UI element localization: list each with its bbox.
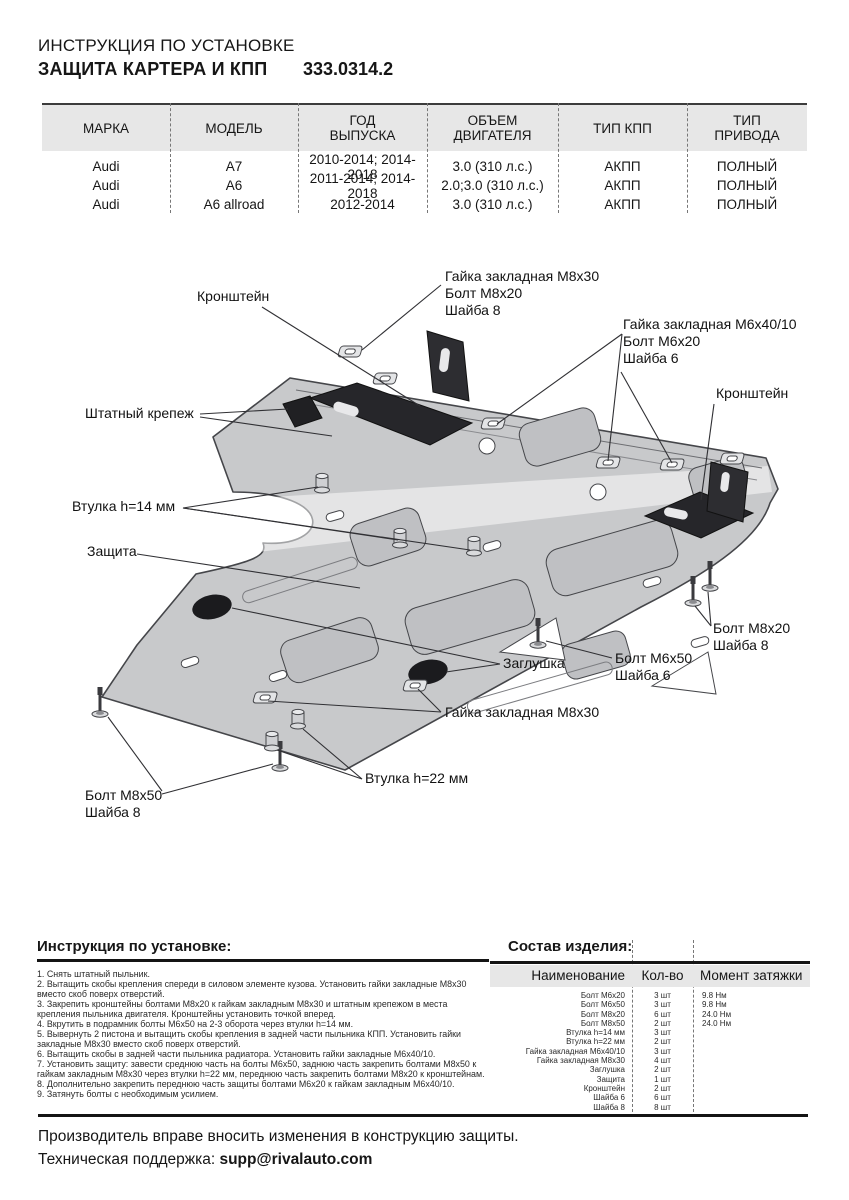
parts-row: Болт М6х503 шт9.8 Нм [490,1000,810,1009]
label-bushing-22: Втулка h=22 мм [365,770,468,787]
cell: A6 [170,178,298,193]
parts-rows: Болт М6х203 шт9.8 Нм Болт М6х503 шт9.8 Н… [490,991,810,1112]
parts-row: Втулка h=14 мм3 шт [490,1028,810,1037]
part-name: Болт М6х50 [490,1000,625,1009]
instruction-step: 6. Вытащить скобы в задней части пыльник… [37,1049,489,1059]
installation-instructions: Инструкция по установке: 1. Снять штатны… [37,938,489,1099]
part-name: Кронштейн [490,1084,625,1093]
part-torque: 9.8 Нм [702,991,807,1000]
label-guard: Защита [87,543,137,560]
part-qty: 3 шт [632,1028,693,1037]
part-name: Втулка h=22 мм [490,1037,625,1046]
part-qty: 2 шт [632,1019,693,1028]
header: ИНСТРУКЦИЯ ПО УСТАНОВКЕ ЗАЩИТА КАРТЕРА И… [38,36,638,81]
table-row: Audi A6 2011-2014; 2014-2018 2.0;3.0 (31… [42,176,807,195]
disclaimer: Производитель вправе вносить изменения в… [38,1128,519,1146]
cell: ПОЛНЫЙ [687,178,807,193]
label-nut-bolt-top: Гайка закладная М8х30 Болт М8х20 Шайба 8 [445,268,599,319]
part-qty: 6 шт [632,1093,693,1102]
part-qty: 3 шт [632,1047,693,1056]
label-factory-fastener: Штатный крепеж [85,405,194,422]
parts-row: Заглушка2 шт [490,1065,810,1074]
col-header-qty: Кол-во [632,968,693,983]
instruction-step: 8. Дополнительно закрепить переднюю част… [37,1079,489,1089]
instruction-step: 4. Вкрутить в подрамник болты М6х50 на 2… [37,1019,489,1029]
cell: АКПП [558,178,687,193]
part-torque: 9.8 Нм [702,1000,807,1009]
cell: 3.0 (310 л.с.) [427,159,558,174]
cell: ПОЛНЫЙ [687,197,807,212]
part-name: Болт М6х20 [490,991,625,1000]
part-torque: 24.0 Нм [702,1019,807,1028]
label-bracket-right: Кронштейн [716,385,788,402]
cell: Audi [42,197,170,212]
cell: ПОЛНЫЙ [687,159,807,174]
part-torque: 24.0 Нм [702,1010,807,1019]
col-header-name: Наименование [490,968,625,983]
part-qty: 2 шт [632,1065,693,1074]
vehicle-table: МАРКА МОДЕЛЬ ГОД ВЫПУСКА ОБЪЕМ ДВИГАТЕЛЯ… [42,103,807,213]
cell: 2011-2014; 2014-2018 [298,171,427,201]
support-line: Техническая поддержка: supp@rivalauto.co… [38,1151,372,1169]
label-bushing-14: Втулка h=14 мм [72,498,175,515]
parts-row: Болт М8х206 шт24.0 Нм [490,1010,810,1019]
label-bolt-m6x50: Болт М6х50 Шайба 6 [615,650,692,684]
col-header-torque: Момент затяжки [700,968,810,983]
cell: A7 [170,159,298,174]
part-qty: 4 шт [632,1056,693,1065]
support-label: Техническая поддержка: [38,1151,219,1168]
heading-rule [37,959,489,962]
vehicle-table-body: Audi A7 2010-2014; 2014-2018 3.0 (310 л.… [42,157,807,214]
part-number: 333.0314.2 [303,59,393,80]
instruction-step: 3. Закрепить кронштейны болтами М8х20 к … [37,999,489,1019]
product-title: ЗАЩИТА КАРТЕРА И КПП [38,59,267,79]
support-email: supp@rivalauto.com [219,1151,372,1168]
col-header-model: МОДЕЛЬ [170,121,298,136]
label-bracket-left: Кронштейн [197,288,269,305]
part-name: Шайба 8 [490,1103,625,1112]
instruction-step: 5. Вывернуть 2 пистона и вытащить скобы … [37,1029,489,1049]
column-separator [558,103,559,213]
part-name: Заглушка [490,1065,625,1074]
vehicle-table-header: МАРКА МОДЕЛЬ ГОД ВЫПУСКА ОБЪЕМ ДВИГАТЕЛЯ… [42,103,807,151]
bottom-rule [38,1114,808,1117]
instruction-step: 7. Установить защиту: завести среднюю ча… [37,1059,489,1079]
part-name: Шайба 6 [490,1093,625,1102]
label-bolt-m8x20: Болт М8х20 Шайба 8 [713,620,790,654]
table-row: Audi A6 allroad 2012-2014 3.0 (310 л.с.)… [42,195,807,214]
part-name: Гайка закладная М6х40/10 [490,1047,625,1056]
part-qty: 3 шт [632,991,693,1000]
instruction-step: 1. Снять штатный пыльник. [37,969,489,979]
parts-row: Шайба 88 шт [490,1103,810,1112]
part-name: Болт М8х50 [490,1019,625,1028]
parts-row: Гайка закладная М6х40/103 шт [490,1047,810,1056]
instructions-heading: Инструкция по установке: [37,938,489,955]
column-separator [687,103,688,213]
col-header-year: ГОД ВЫПУСКА [298,113,427,143]
col-header-drive: ТИП ПРИВОДА [687,113,807,143]
parts-row: Втулка h=22 мм2 шт [490,1037,810,1046]
part-name: Болт М8х20 [490,1010,625,1019]
part-qty: 6 шт [632,1010,693,1019]
column-separator [298,103,299,213]
part-name: Защита [490,1075,625,1084]
label-bolt-m8x50: Болт М8х50 Шайба 8 [85,787,162,821]
part-name: Гайка закладная М8х30 [490,1056,625,1065]
col-header-engine: ОБЪЕМ ДВИГАТЕЛЯ [427,113,558,143]
cell: A6 allroad [170,197,298,212]
cell: 3.0 (310 л.с.) [427,197,558,212]
part-qty: 8 шт [632,1103,693,1112]
parts-row: Шайба 66 шт [490,1093,810,1102]
instruction-step: 9. Затянуть болты с необходимым усилием. [37,1089,489,1099]
part-qty: 2 шт [632,1037,693,1046]
label-nut-bolt-right: Гайка закладная М6х40/10 Болт М6х20 Шайб… [623,316,797,367]
part-qty: 3 шт [632,1000,693,1009]
col-header-brand: МАРКА [42,121,170,136]
heading-rule [490,961,810,964]
cell: АКПП [558,159,687,174]
part-name: Втулка h=14 мм [490,1028,625,1037]
parts-row: Кронштейн2 шт [490,1084,810,1093]
label-plug: Заглушка [503,655,565,672]
parts-row: Болт М8х502 шт24.0 Нм [490,1019,810,1028]
instruction-sheet: ИНСТРУКЦИЯ ПО УСТАНОВКЕ ЗАЩИТА КАРТЕРА И… [0,0,849,1200]
parts-row: Защита1 шт [490,1075,810,1084]
part-qty: 2 шт [632,1084,693,1093]
cell: 2.0;3.0 (310 л.с.) [427,178,558,193]
doc-type: ИНСТРУКЦИЯ ПО УСТАНОВКЕ [38,36,638,56]
parts-row: Болт М6х203 шт9.8 Нм [490,991,810,1000]
parts-row: Гайка закладная М8х304 шт [490,1056,810,1065]
cell: Audi [42,178,170,193]
part-qty: 1 шт [632,1075,693,1084]
cell: АКПП [558,197,687,212]
label-nut-m8x30: Гайка закладная М8х30 [445,704,599,721]
cell: 2012-2014 [298,197,427,212]
column-separator [170,103,171,213]
parts-heading: Состав изделия: [508,938,632,955]
cell: Audi [42,159,170,174]
instruction-step: 2. Вытащить скобы крепления спереди в си… [37,979,489,999]
col-header-gearbox: ТИП КПП [558,121,687,136]
parts-list: Состав изделия: Наименование Кол-во Моме… [490,938,810,1118]
column-separator [427,103,428,213]
